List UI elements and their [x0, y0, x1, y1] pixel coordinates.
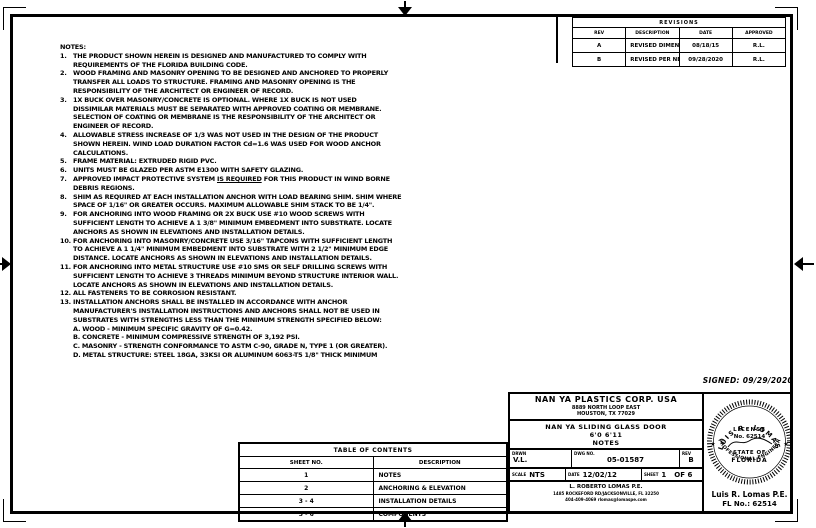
revision-cell: REV B — [680, 450, 702, 467]
note-number: 6. — [60, 166, 73, 175]
note-item: 11.FOR ANCHORING INTO METAL STRUCTURE US… — [60, 263, 406, 289]
note-text: ALL FASTENERS TO BE CORROSION RESISTANT. — [73, 289, 236, 298]
note-number: 10. — [60, 237, 73, 263]
pe-seal-graphic: LUIS R. LOMAS PROFESSIONAL ENGINEER ★ ★ … — [704, 394, 795, 516]
note-item: 10.FOR ANCHORING INTO MASONRY/CONCRETE U… — [60, 237, 406, 263]
toc-sheet-no: 3 - 4 — [239, 495, 373, 508]
note-number: 1. — [60, 52, 73, 70]
engineer-seal-name: Luis R. Lomas P.E. — [712, 490, 788, 499]
product-title: NAN YA SLIDING GLASS DOOR — [510, 423, 702, 431]
revision-row: AREVISED DIMENSIONS08/18/15R.L. — [573, 39, 786, 53]
notes-title: NOTES: — [60, 43, 406, 52]
note-text: THE PRODUCT SHOWN HEREIN IS DESIGNED AND… — [73, 52, 367, 70]
note-item: 3.1X BUCK OVER MASONRY/CONCRETE IS OPTIO… — [60, 96, 406, 131]
revisions-header-row: REV DESCRIPTION DATE APPROVED — [573, 28, 786, 39]
note-text: FRAME MATERIAL: EXTRUDED RIGID PVC. — [73, 157, 217, 166]
note-number: 7. — [60, 175, 73, 193]
title-block-row2: SCALE NTS DATE 12/02/12 SHEET 1 OF 6 — [510, 469, 702, 482]
company-address-line2: HOUSTON, TX 77029 — [510, 411, 702, 417]
note-text: WOOD FRAMING AND MASONRY OPENING TO BE D… — [73, 69, 388, 95]
toc-row: 5 - 6COMPONENTS — [239, 508, 507, 522]
toc-sheet-no: 1 — [239, 469, 373, 482]
title-block: NAN YA PLASTICS CORP. USA 8889 NORTH LOO… — [508, 392, 704, 514]
notes-block: NOTES: 1.THE PRODUCT SHOWN HEREIN IS DES… — [60, 43, 406, 360]
toc-title: TABLE OF CONTENTS — [239, 443, 507, 457]
revisions-title: REVISIONS — [573, 18, 786, 28]
note-text-part: APPROVED IMPACT PROTECTIVE SYSTEM — [73, 175, 217, 183]
note-item: 5.FRAME MATERIAL: EXTRUDED RIGID PVC. — [60, 157, 406, 166]
note-item: 9.FOR ANCHORING INTO WOOD FRAMING OR 2X … — [60, 210, 406, 236]
note-number: 4. — [60, 131, 73, 157]
revisions-header-approved: APPROVED — [732, 28, 785, 39]
revision-description: REVISED DIMENSIONS — [626, 39, 679, 53]
note-number: 9. — [60, 210, 73, 236]
sheet-number: 1 — [661, 471, 666, 479]
note-number: 8. — [60, 193, 73, 211]
product-size: 6'0 6'11 — [510, 431, 702, 439]
sheet-cell: SHEET 1 OF 6 — [642, 469, 702, 480]
revision-approved: R.L. — [732, 53, 785, 67]
note-item: 7.APPROVED IMPACT PROTECTIVE SYSTEM IS R… — [60, 175, 406, 193]
toc-title-row: TABLE OF CONTENTS — [239, 443, 507, 457]
revision-row: BREVISED PER NEW REQUIREMENTS09/28/2020R… — [573, 53, 786, 67]
seal-state-of-text: STATE OF — [733, 450, 766, 456]
toc-body: 1NOTES2ANCHORING & ELEVATION3 - 4INSTALL… — [239, 469, 507, 522]
note-number: 11. — [60, 263, 73, 289]
corner-mark-top-left — [3, 7, 26, 30]
note-text: APPROVED IMPACT PROTECTIVE SYSTEM IS REQ… — [73, 175, 390, 193]
note-item: 2.WOOD FRAMING AND MASONRY OPENING TO BE… — [60, 69, 406, 95]
revision-date: 08/18/15 — [679, 39, 732, 53]
note-number: 12. — [60, 289, 73, 298]
signed-date-note: SIGNED: 09/29/2020 — [600, 376, 793, 385]
date-value: 12/02/12 — [583, 471, 617, 479]
note-text: FOR ANCHORING INTO METAL STRUCTURE USE #… — [73, 263, 398, 289]
date-label: DATE — [568, 472, 583, 477]
note-number: 3. — [60, 96, 73, 131]
revision-rev: B — [573, 53, 626, 67]
scale-label: SCALE — [512, 472, 529, 477]
scale-value: NTS — [529, 471, 545, 479]
revisions-header-rev: REV — [573, 28, 626, 39]
drawn-by-value: V.L. — [510, 456, 571, 464]
corner-mark-bottom-left — [3, 499, 26, 522]
revision-approved: R.L. — [732, 39, 785, 53]
note-item: 8.SHIM AS REQUIRED AT EACH INSTALLATION … — [60, 193, 406, 211]
seal-license-number: No. 62514 — [734, 434, 766, 440]
drawing-number-cell: DWG NO. 05-01587 — [572, 450, 680, 467]
seal-star-right-icon: ★ — [783, 441, 788, 448]
note-text: INSTALLATION ANCHORS SHALL BE INSTALLED … — [73, 298, 387, 360]
note-text: 1X BUCK OVER MASONRY/CONCRETE IS OPTIONA… — [73, 96, 381, 131]
note-item: 6.UNITS MUST BE GLAZED PER ASTM E1300 WI… — [60, 166, 406, 175]
revision-description: REVISED PER NEW REQUIREMENTS — [626, 53, 679, 67]
toc-sheet-no: 5 - 6 — [239, 508, 373, 522]
note-text: SHIM AS REQUIRED AT EACH INSTALLATION AN… — [73, 193, 401, 211]
engineer-name: L. ROBERTO LOMAS P.E. — [510, 484, 702, 491]
toc-header-sheet-no: SHEET NO. — [239, 457, 373, 469]
drawing-sheet: { "revisions": { "title": "REVISIONS", "… — [0, 0, 816, 528]
revision-value: B — [680, 456, 702, 464]
toc-description: ANCHORING & ELEVATION — [373, 482, 507, 495]
table-of-contents: TABLE OF CONTENTS SHEET NO. DESCRIPTION … — [238, 442, 508, 522]
scale-cell: SCALE NTS — [510, 469, 566, 480]
note-text: FOR ANCHORING INTO MASONRY/CONCRETE USE … — [73, 237, 392, 263]
note-number: 2. — [60, 69, 73, 95]
toc-row: 2ANCHORING & ELEVATION — [239, 482, 507, 495]
title-block-row1: DRWN V.L. DWG NO. 05-01587 REV B — [510, 450, 702, 469]
note-text: UNITS MUST BE GLAZED PER ASTM E1300 WITH… — [73, 166, 303, 175]
seal-star-left-icon: ★ — [710, 441, 715, 448]
toc-row: 3 - 4INSTALLATION DETAILS — [239, 495, 507, 508]
sheet-of-total: OF 6 — [674, 471, 692, 479]
toc-sheet-no: 2 — [239, 482, 373, 495]
sheet-subject: NOTES — [510, 439, 702, 447]
drawn-by-cell: DRWN V.L. — [510, 450, 572, 467]
note-text: FOR ANCHORING INTO WOOD FRAMING OR 2X BU… — [73, 210, 392, 236]
product-box: NAN YA SLIDING GLASS DOOR 6'0 6'11 NOTES — [510, 421, 702, 450]
notes-list: 1.THE PRODUCT SHOWN HEREIN IS DESIGNED A… — [60, 52, 406, 360]
note-item: 1.THE PRODUCT SHOWN HEREIN IS DESIGNED A… — [60, 52, 406, 70]
revision-date: 09/28/2020 — [679, 53, 732, 67]
toc-description: COMPONENTS — [373, 508, 507, 522]
seal-state-text: FLORIDA — [731, 457, 767, 464]
pe-seal-box: LUIS R. LOMAS PROFESSIONAL ENGINEER ★ ★ … — [702, 392, 793, 514]
date-cell: DATE 12/02/12 — [566, 469, 642, 480]
note-item: 4.ALLOWABLE STRESS INCREASE OF 1/3 WAS N… — [60, 131, 406, 157]
center-mark-right-stem — [803, 263, 814, 265]
revision-table-tick-line — [556, 17, 558, 63]
revisions-table: REVISIONS REV DESCRIPTION DATE APPROVED … — [572, 17, 786, 67]
center-mark-left-arrow-icon — [2, 257, 11, 271]
toc-description: NOTES — [373, 469, 507, 482]
note-text: ALLOWABLE STRESS INCREASE OF 1/3 WAS NOT… — [73, 131, 381, 157]
company-box: NAN YA PLASTICS CORP. USA 8889 NORTH LOO… — [510, 394, 702, 421]
engineer-seal-license: FL No.: 62514 — [722, 500, 777, 508]
note-text-part: IS REQUIRED — [217, 175, 262, 183]
revisions-body: AREVISED DIMENSIONS08/18/15R.L.BREVISED … — [573, 39, 786, 67]
center-mark-right-arrow-icon — [794, 257, 803, 271]
revisions-header-date: DATE — [679, 28, 732, 39]
center-mark-top-arrow-icon — [398, 7, 412, 16]
toc-row: 1NOTES — [239, 469, 507, 482]
engineer-contact: 404-409-4069 rlomas@lomaspe.com — [510, 497, 702, 503]
seal-license-text: LICENSE — [733, 427, 766, 433]
toc-header-row: SHEET NO. DESCRIPTION — [239, 457, 507, 469]
toc-header-description: DESCRIPTION — [373, 457, 507, 469]
sheet-label: SHEET — [644, 472, 661, 477]
revisions-title-row: REVISIONS — [573, 18, 786, 28]
drawing-number-value: 05-01587 — [572, 456, 679, 464]
note-number: 5. — [60, 157, 73, 166]
engineer-box: L. ROBERTO LOMAS P.E. 1485 ROCKEFORD RD/… — [510, 482, 702, 511]
revision-rev: A — [573, 39, 626, 53]
revisions-header-description: DESCRIPTION — [626, 28, 679, 39]
note-item: 13.INSTALLATION ANCHORS SHALL BE INSTALL… — [60, 298, 406, 360]
toc-description: INSTALLATION DETAILS — [373, 495, 507, 508]
company-name: NAN YA PLASTICS CORP. USA — [510, 395, 702, 405]
note-number: 13. — [60, 298, 73, 360]
note-item: 12.ALL FASTENERS TO BE CORROSION RESISTA… — [60, 289, 406, 298]
